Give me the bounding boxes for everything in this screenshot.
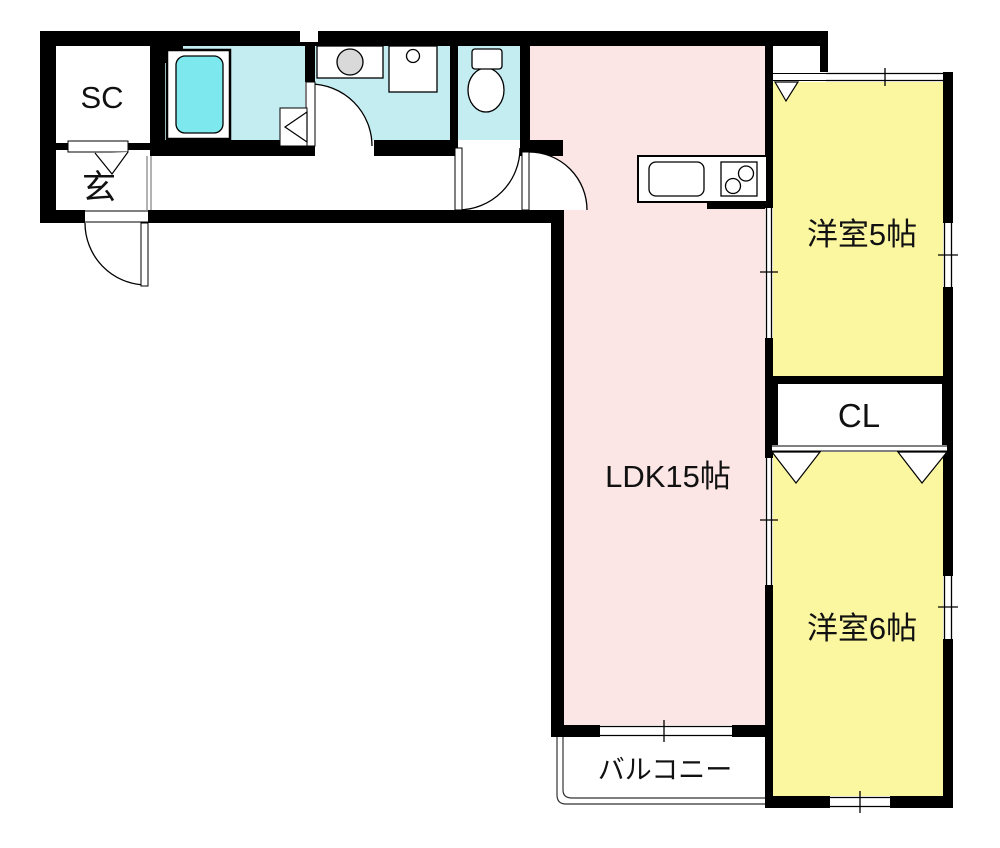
label-bedroom5: 洋室5帖 xyxy=(807,217,917,252)
bathtub xyxy=(167,50,230,139)
room-ldk xyxy=(530,46,773,725)
bathroom-folding-door xyxy=(280,108,307,146)
kitchen-sink xyxy=(649,162,704,196)
washbasin xyxy=(389,46,437,92)
wall-notch xyxy=(300,31,318,42)
toilet-door xyxy=(455,148,520,210)
floor-plan-canvas: SC 玄 LDK15帖 洋室5帖 CL 洋室6帖 バルコニー xyxy=(0,0,1000,848)
label-balcony: バルコニー xyxy=(598,755,732,785)
washing-machine xyxy=(317,46,383,78)
toilet xyxy=(468,49,504,112)
label-closet: CL xyxy=(838,397,880,434)
label-ldk: LDK15帖 xyxy=(605,459,731,494)
genkan-step xyxy=(147,156,151,210)
stove-burner xyxy=(726,179,741,194)
kitchen-counter xyxy=(638,156,767,202)
label-bedroom6: 洋室6帖 xyxy=(807,611,917,646)
label-genkan: 玄 xyxy=(82,169,116,207)
floor-plan: SC 玄 LDK15帖 洋室5帖 CL 洋室6帖 バルコニー xyxy=(0,0,1000,848)
entrance-door xyxy=(85,210,148,286)
label-sc: SC xyxy=(80,80,123,115)
stove-burner xyxy=(739,166,754,181)
